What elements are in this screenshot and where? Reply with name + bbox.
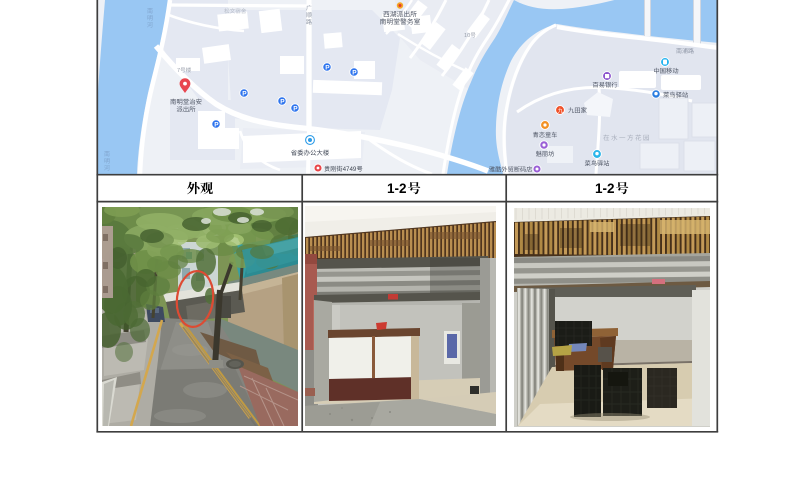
svg-text:4749: 4749 xyxy=(343,166,357,173)
svg-text:P: P xyxy=(242,90,247,97)
svg-text:P: P xyxy=(280,98,285,105)
svg-text:10: 10 xyxy=(464,33,470,39)
svg-text:P: P xyxy=(325,64,330,71)
svg-text:九: 九 xyxy=(558,106,564,114)
svg-text:P: P xyxy=(293,105,298,112)
svg-text:1-2: 1-2 xyxy=(595,181,615,196)
svg-text:7: 7 xyxy=(177,68,180,74)
svg-text:1-2: 1-2 xyxy=(387,181,407,196)
svg-text:P: P xyxy=(352,69,357,76)
svg-text:P: P xyxy=(214,121,219,128)
